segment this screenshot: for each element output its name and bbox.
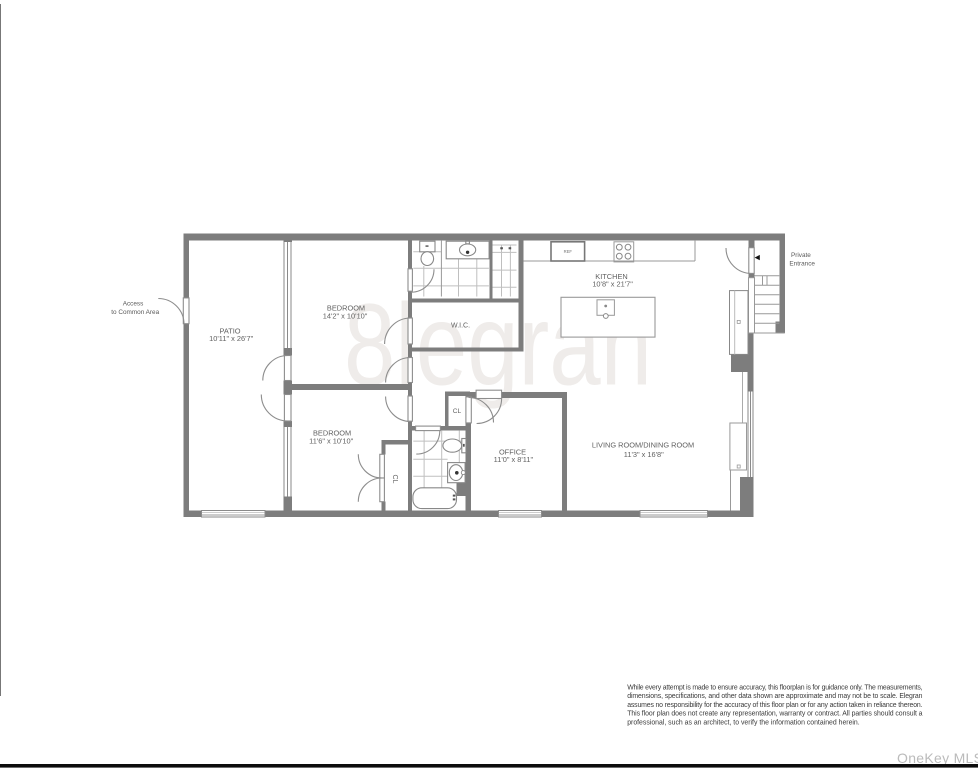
svg-text:Access: Access	[123, 301, 144, 308]
svg-text:Private: Private	[791, 252, 811, 259]
svg-text:Entrance: Entrance	[789, 260, 815, 267]
svg-text:to Common Area: to Common Area	[111, 309, 159, 316]
svg-text:CL: CL	[453, 408, 462, 415]
svg-text:dimensions, specifications, an: dimensions, specifications, and other da…	[627, 693, 922, 700]
svg-text:11'6" x 10'10": 11'6" x 10'10"	[309, 436, 353, 445]
svg-text:OneKey MLS: OneKey MLS	[897, 750, 978, 766]
svg-text:10'11" x 26'7": 10'11" x 26'7"	[209, 334, 253, 343]
svg-text:professional, such as an archi: professional, such as an architect, to v…	[627, 719, 860, 726]
svg-text:11'3" x 16'8": 11'3" x 16'8"	[624, 450, 664, 459]
svg-text:CL: CL	[391, 475, 398, 484]
svg-text:This floor plan does not creat: This floor plan does not create any repr…	[627, 711, 922, 718]
svg-text:LIVING ROOM/DINING ROOM: LIVING ROOM/DINING ROOM	[592, 441, 694, 450]
svg-text:10'8" x 21'7": 10'8" x 21'7"	[592, 280, 633, 289]
svg-text:While every attempt is made to: While every attempt is made to ensure ac…	[627, 685, 922, 692]
svg-text:14'2" x 10'10": 14'2" x 10'10"	[323, 311, 368, 320]
svg-text:11'0" x 8'11": 11'0" x 8'11"	[494, 455, 534, 464]
svg-text:assumes no responsibility for: assumes no responsibility for the accura…	[627, 702, 922, 709]
svg-text:REF: REF	[564, 249, 573, 254]
svg-text:W.I.C.: W.I.C.	[451, 322, 470, 329]
